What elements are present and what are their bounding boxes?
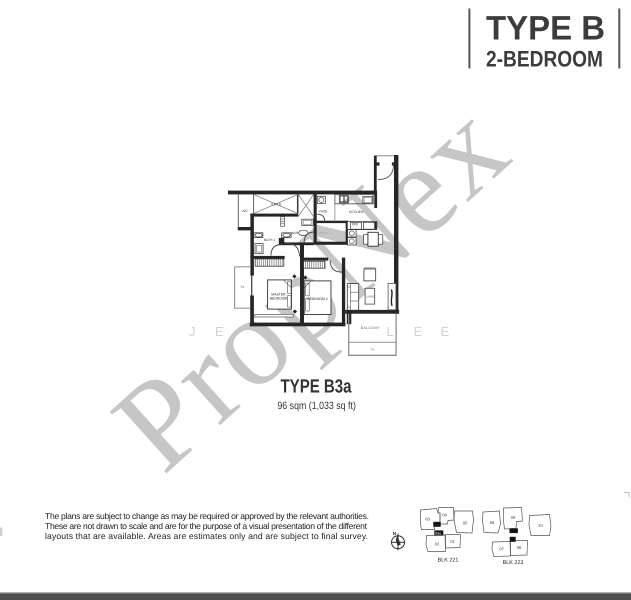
svg-text:VOID: VOID bbox=[271, 203, 282, 207]
svg-text:TYPE B3a: TYPE B3a bbox=[281, 377, 352, 398]
svg-text:layouts that are available. Ar: layouts that are available. Areas are es… bbox=[45, 531, 368, 541]
svg-text:J: J bbox=[189, 324, 196, 339]
svg-text:08: 08 bbox=[490, 520, 495, 525]
svg-text:BEDROOM: BEDROOM bbox=[270, 297, 288, 301]
svg-text:BLK 221: BLK 221 bbox=[438, 558, 459, 564]
svg-text:These are not drawn to scale a: These are not drawn to scale and are for… bbox=[45, 521, 368, 531]
svg-text:PL: PL bbox=[371, 347, 375, 351]
svg-text:05: 05 bbox=[463, 521, 468, 526]
svg-text:04: 04 bbox=[442, 513, 447, 518]
svg-text:TYPE B: TYPE B bbox=[486, 10, 605, 48]
svg-text:L: L bbox=[387, 324, 394, 339]
svg-text:BEDROOM 2: BEDROOM 2 bbox=[307, 297, 327, 301]
svg-text:The plans are subject to chang: The plans are subject to change as may b… bbox=[45, 511, 369, 521]
svg-text:02: 02 bbox=[435, 542, 440, 547]
svg-text:E: E bbox=[441, 324, 450, 339]
svg-text:96 sqm (1,033 sq ft): 96 sqm (1,033 sq ft) bbox=[277, 400, 356, 412]
svg-text:BLK 223: BLK 223 bbox=[503, 560, 524, 566]
svg-text:PL: PL bbox=[241, 285, 245, 289]
svg-text:BALCONY: BALCONY bbox=[361, 326, 380, 330]
svg-text:06: 06 bbox=[517, 545, 522, 550]
svg-text:09: 09 bbox=[511, 515, 516, 520]
svg-text:A/C: A/C bbox=[242, 209, 248, 213]
svg-text:KITCHEN: KITCHEN bbox=[349, 210, 364, 214]
svg-text:01: 01 bbox=[450, 539, 455, 544]
svg-text:LIVING: LIVING bbox=[366, 296, 375, 299]
svg-text:BATH 1: BATH 1 bbox=[264, 238, 275, 242]
svg-text:YARD: YARD bbox=[319, 210, 329, 214]
svg-text:07: 07 bbox=[499, 547, 504, 552]
svg-text:03: 03 bbox=[425, 517, 430, 522]
svg-text:10: 10 bbox=[538, 523, 543, 528]
svg-text:UTILITY: UTILITY bbox=[317, 231, 328, 235]
svg-text:2-BEDROOM: 2-BEDROOM bbox=[486, 47, 603, 72]
svg-text:B3a: B3a bbox=[435, 532, 441, 536]
svg-text:E: E bbox=[215, 324, 224, 339]
svg-text:E: E bbox=[414, 324, 423, 339]
